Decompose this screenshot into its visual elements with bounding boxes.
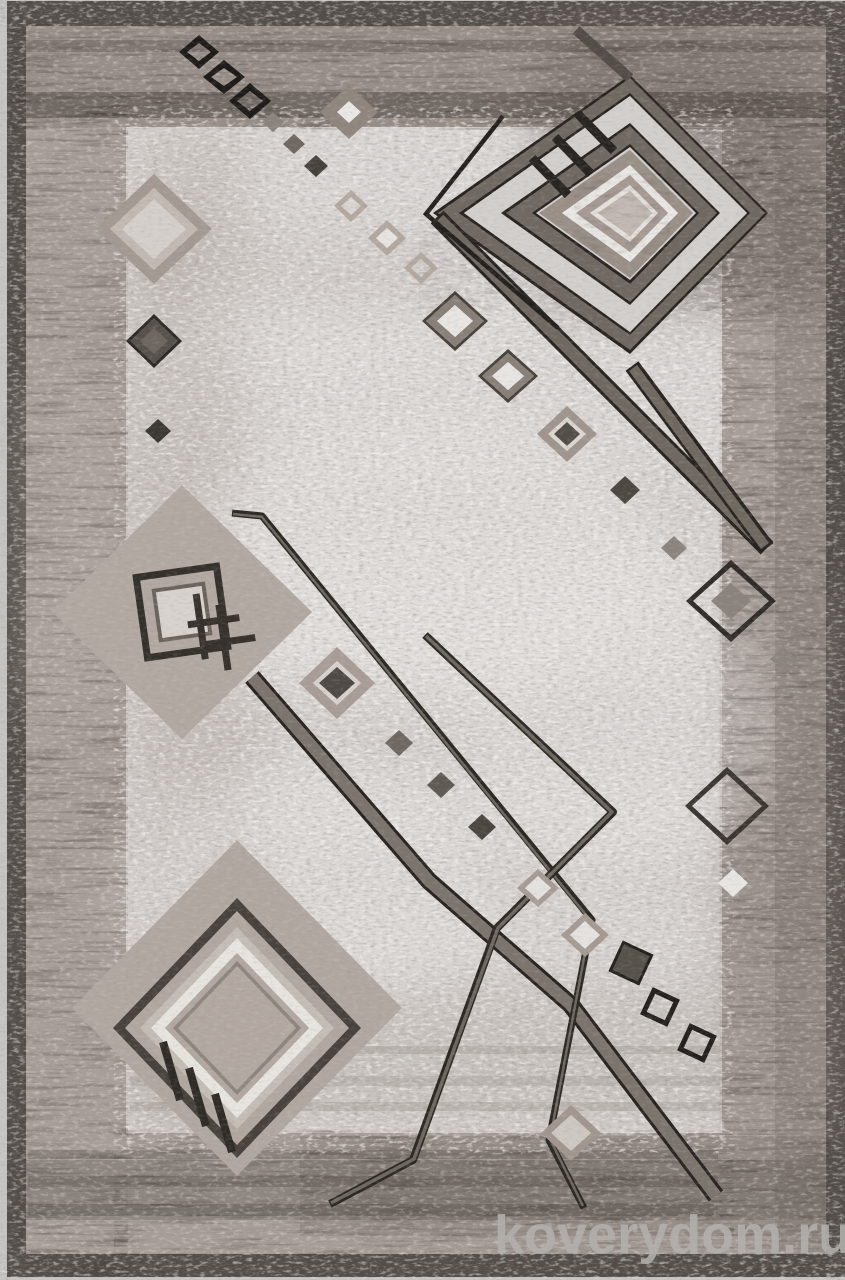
svg-text:koverydom.ru: koverydom.ru: [494, 1205, 845, 1265]
